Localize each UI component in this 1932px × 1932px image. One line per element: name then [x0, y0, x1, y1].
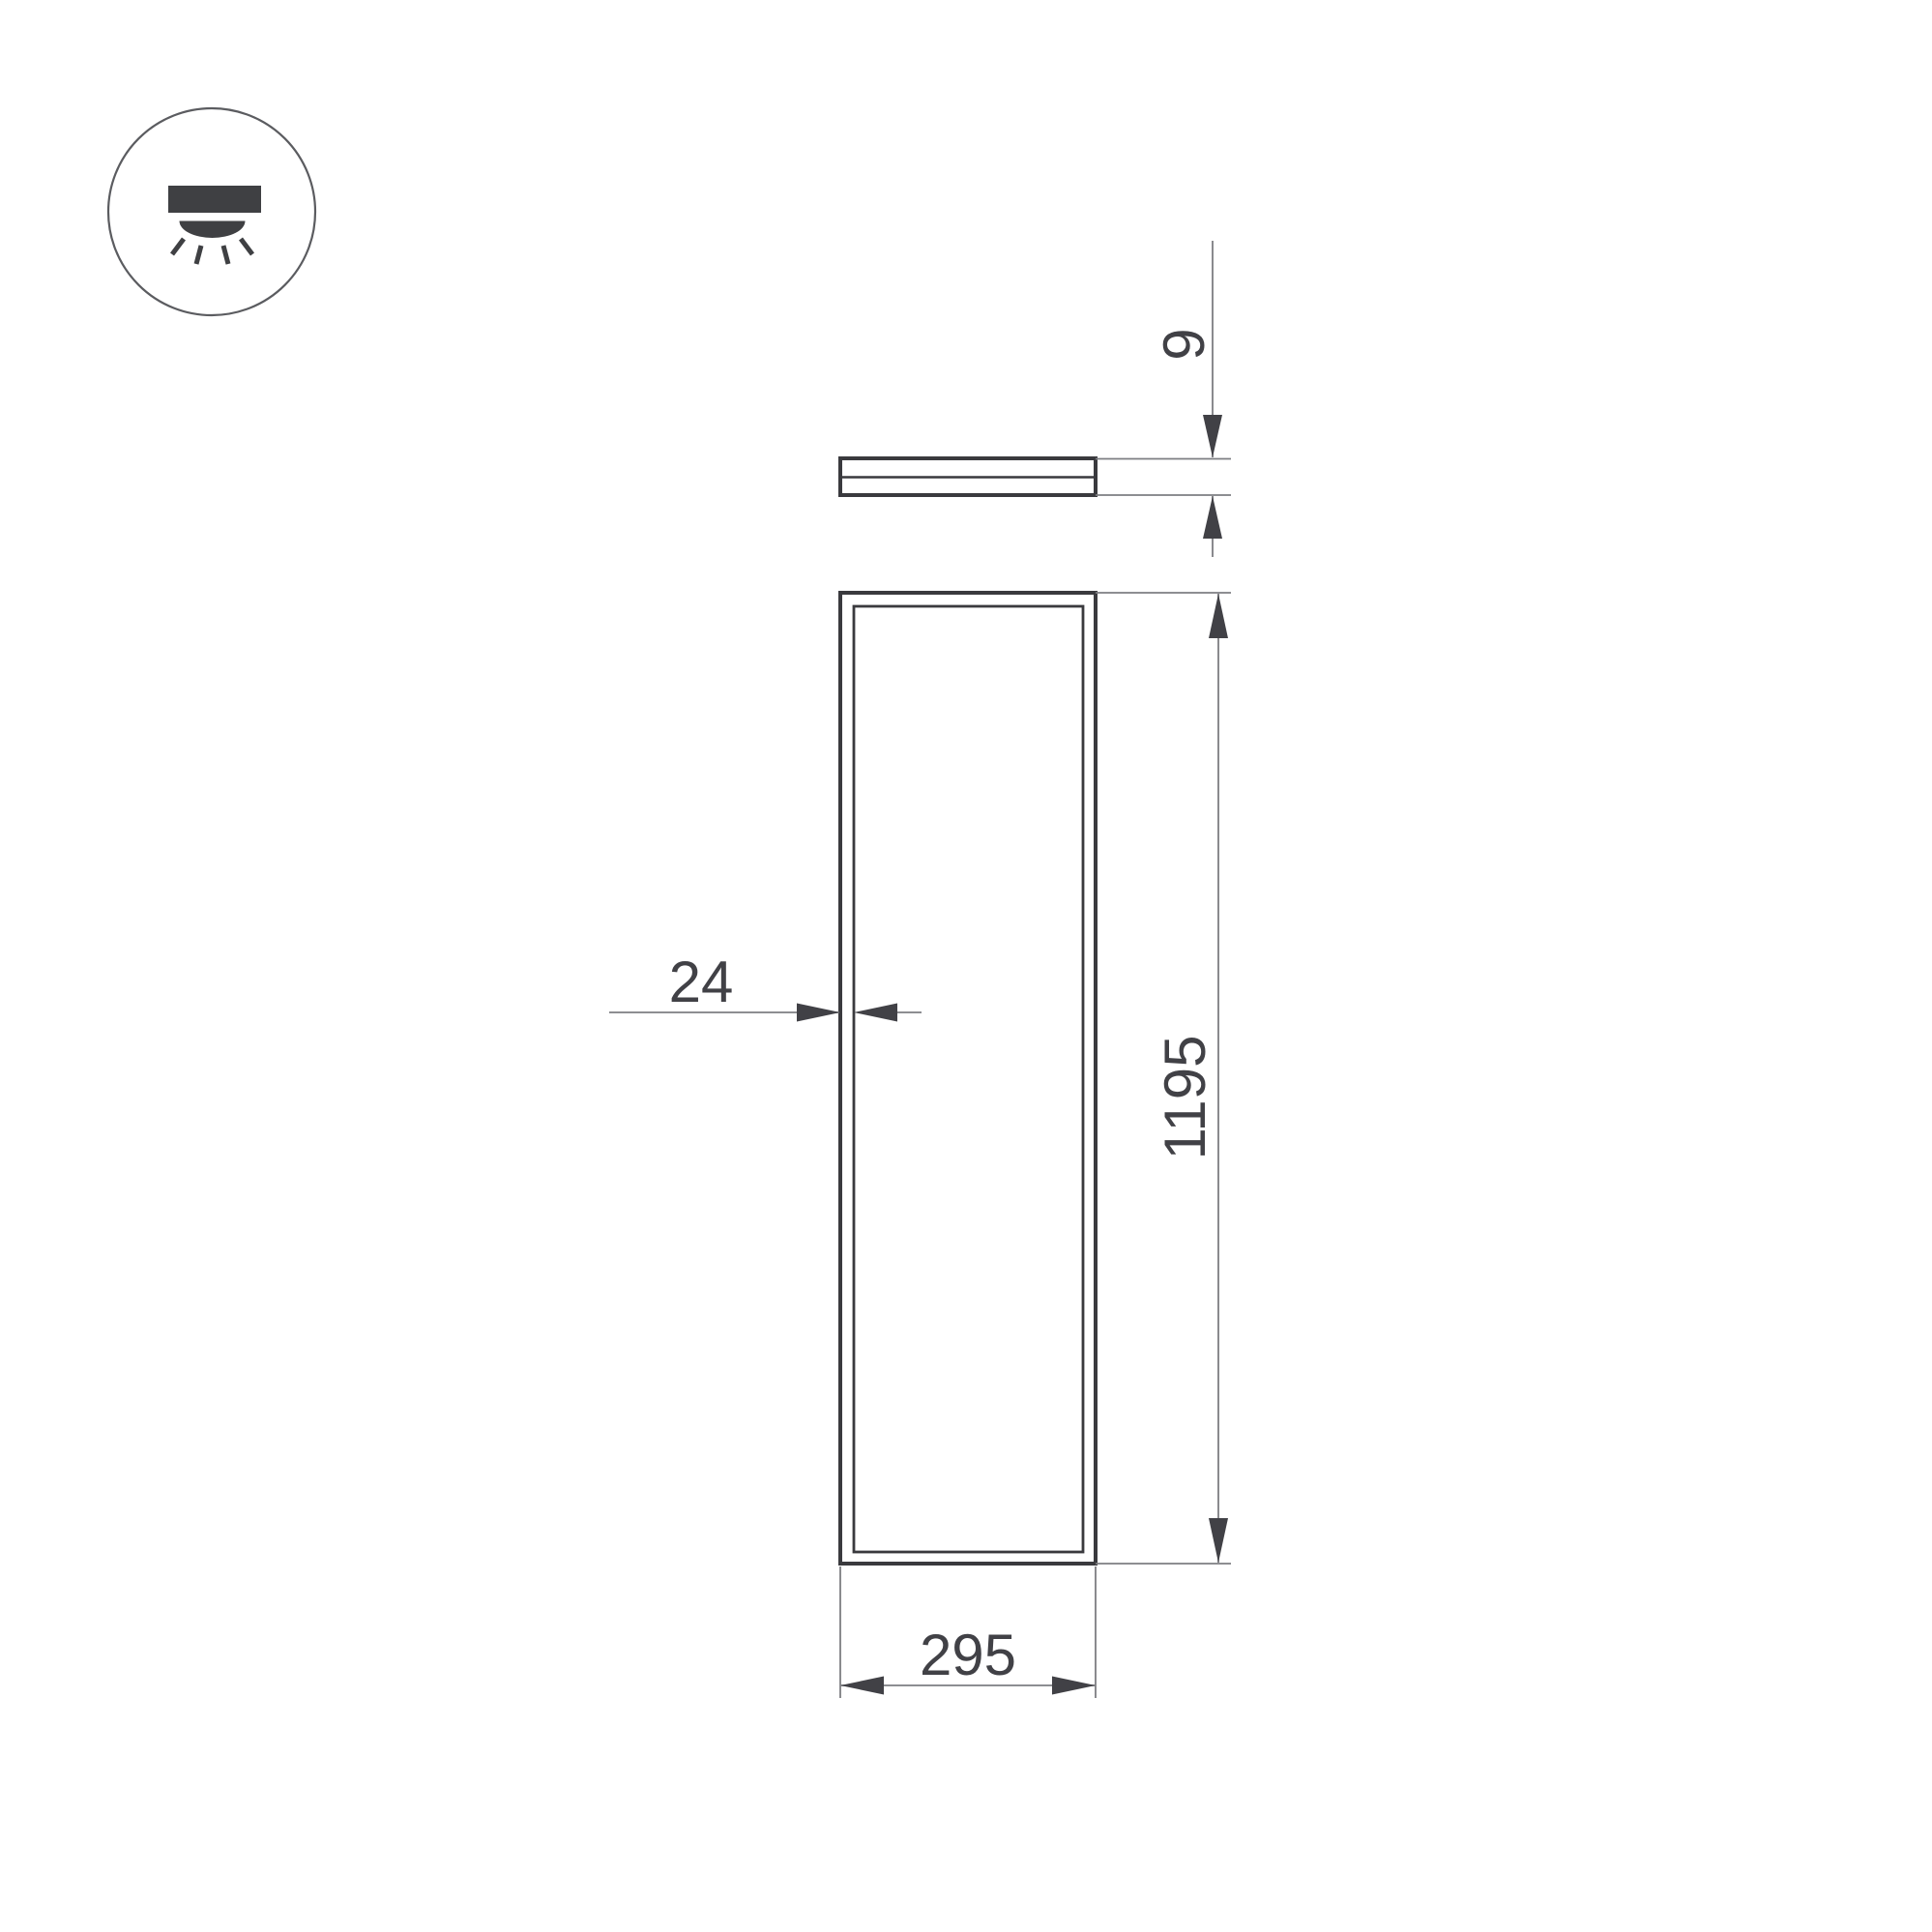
icon-light-dome: [180, 221, 246, 239]
dimension-front-height: 1195: [1096, 593, 1231, 1564]
technical-drawing-page: 9 1195 24 295: [0, 0, 1932, 1932]
icon-light-ray: [241, 239, 252, 254]
arrowhead-left: [840, 1677, 884, 1695]
downlight-icon: [108, 108, 315, 315]
arrowhead-up: [1209, 594, 1228, 638]
front-view-inner-frame: [854, 606, 1083, 1552]
icon-light-ray: [223, 246, 228, 264]
dimension-side-height: 9: [1096, 241, 1231, 557]
arrowhead-down: [1209, 1518, 1228, 1563]
panel-side-view: [840, 458, 1096, 495]
arrowhead-right: [1052, 1677, 1096, 1695]
arrowhead-up: [1203, 496, 1222, 539]
led-panel-dimension-drawing: 9 1195 24 295: [0, 0, 1932, 1932]
icon-fixture-bar: [168, 186, 261, 213]
front-view-outer-frame: [840, 593, 1096, 1564]
icon-light-ray: [172, 239, 184, 254]
dimension-label-front-width: 295: [920, 1623, 1016, 1687]
arrowhead-left: [854, 1004, 897, 1022]
icon-light-ray: [196, 246, 201, 264]
dimension-label-front-height: 1195: [1153, 1035, 1217, 1159]
arrowhead-right: [797, 1004, 840, 1022]
dimension-label-frame-thickness: 24: [669, 950, 734, 1014]
dimension-label-side-height: 9: [1152, 328, 1216, 360]
dimension-front-width: 295: [840, 1566, 1096, 1698]
dimension-frame-thickness: 24: [609, 950, 922, 1022]
panel-front-view: [840, 593, 1096, 1564]
arrowhead-down: [1203, 415, 1222, 457]
